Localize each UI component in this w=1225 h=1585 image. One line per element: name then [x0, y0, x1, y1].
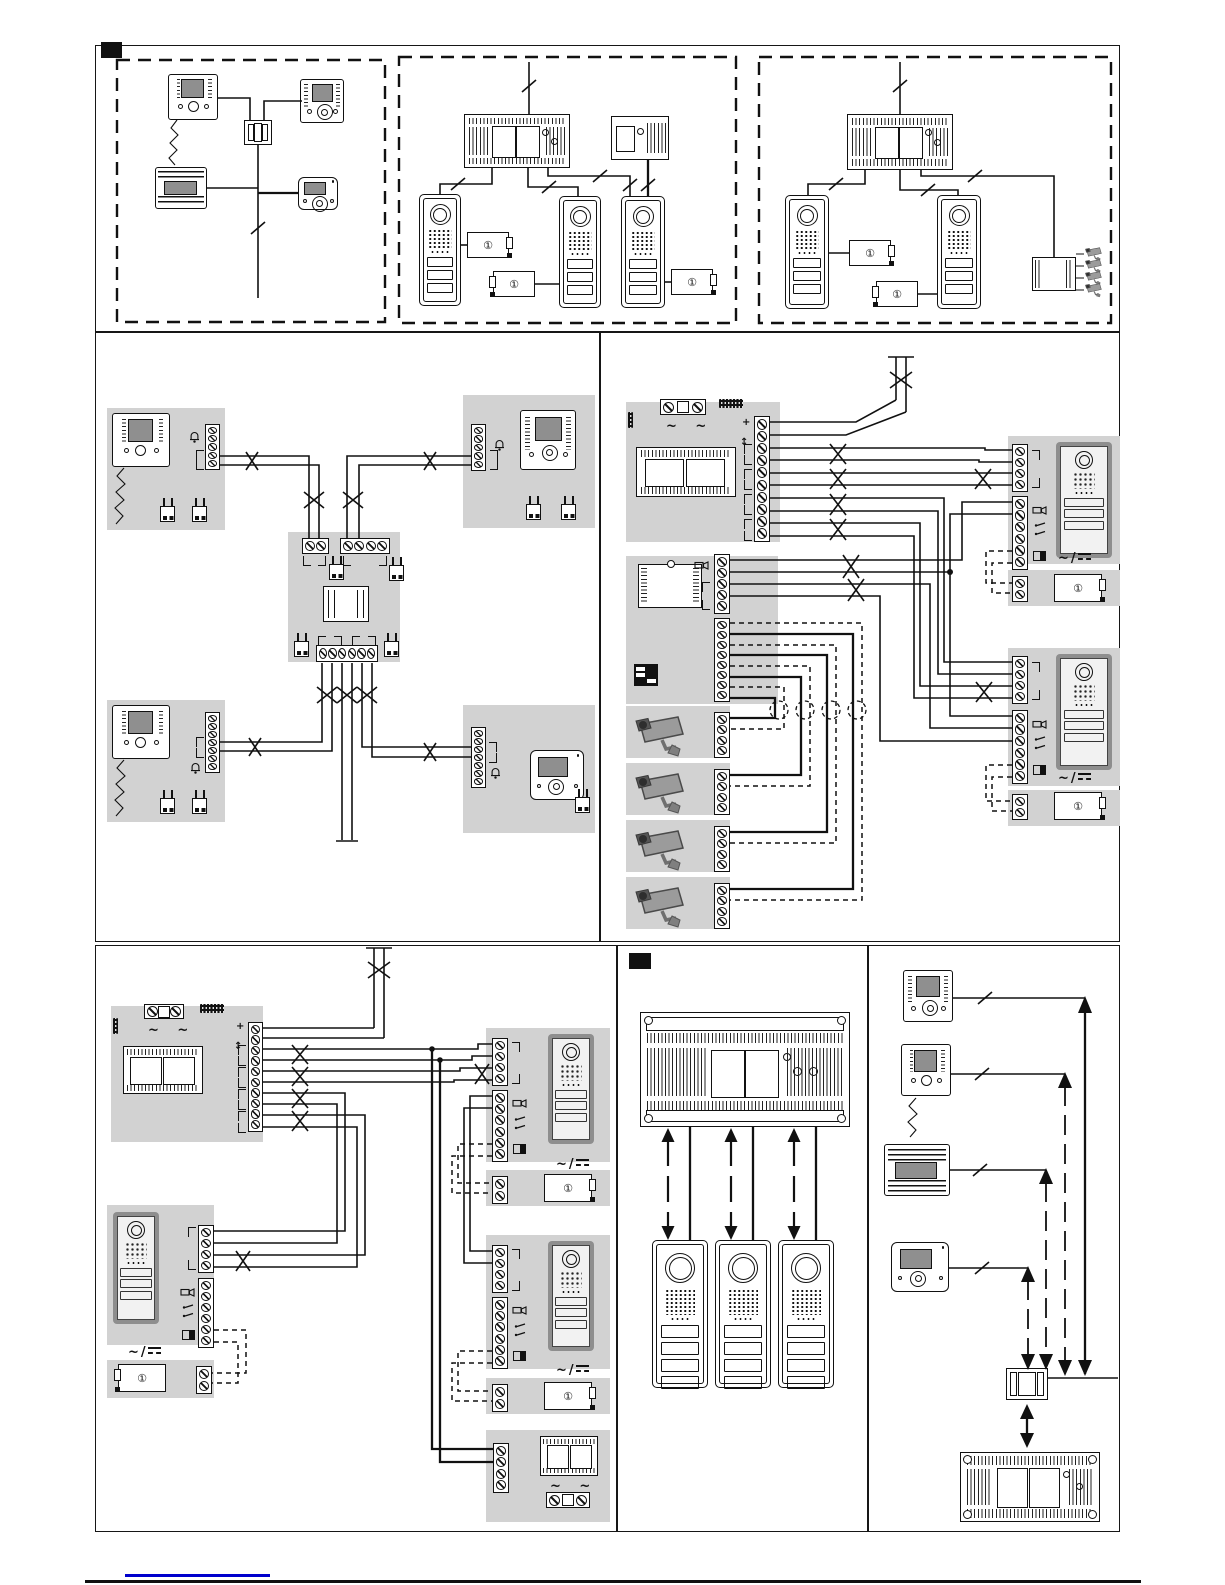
lock-release: ① [467, 232, 509, 258]
entrance-panel-photo [1056, 442, 1112, 558]
jumper [389, 557, 404, 581]
video-handsfree-monitor [903, 970, 953, 1022]
terminal-block [492, 1245, 508, 1293]
terminal-block [1012, 710, 1028, 784]
video-handset-monitor [168, 74, 218, 120]
terminal-block [714, 769, 730, 815]
ac-dc-icon: ~/ [128, 1346, 161, 1359]
audio-intercom-unit [155, 167, 207, 209]
camera-icon [512, 1301, 528, 1320]
door-contact-icon [182, 1330, 195, 1340]
entrance-panel [715, 1240, 771, 1388]
page-bottom-rule [85, 1580, 1141, 1583]
terminal-block [714, 618, 730, 702]
entrance-panel-photo [548, 1241, 594, 1351]
terminal-block [1012, 496, 1028, 570]
mains-fuse-block [660, 399, 706, 415]
manual-page: ① ① ① ① ① [0, 0, 1225, 1585]
entrance-panel [621, 196, 665, 308]
ac-dc-icon: ~/ [1058, 772, 1091, 785]
jumper [384, 633, 399, 657]
switch-contact-icon [1034, 736, 1047, 757]
terminal-block [492, 1297, 508, 1369]
switch-contact-icon [1034, 522, 1047, 543]
frame-bottom-right [868, 945, 1120, 1532]
entrance-panel-photo [548, 1034, 594, 1144]
ac-marks: ~ ~ [148, 1024, 195, 1037]
terminal-block [492, 1176, 508, 1204]
mains-fuse-block [546, 1492, 590, 1508]
door-contact-icon [1033, 551, 1046, 561]
terminal-block [493, 1443, 509, 1493]
power-supply-unit [123, 1046, 203, 1094]
auxiliary-power-supply [611, 116, 669, 160]
connector-strip [200, 1004, 224, 1013]
ac-dc-icon: ~/ [1058, 552, 1091, 565]
camera-icon [694, 556, 710, 575]
entrance-panel [937, 195, 981, 309]
camera-icon [180, 1283, 196, 1302]
entrance-panel [559, 196, 601, 308]
bell-icon [189, 429, 200, 448]
power-supply-unit [636, 447, 736, 497]
terminal-block [714, 554, 730, 614]
section-label-bottom [629, 953, 651, 969]
junction-box [1006, 1368, 1048, 1400]
terminal-block [492, 1038, 508, 1086]
lock-release: ① [544, 1174, 592, 1202]
lock-release: ① [493, 271, 535, 297]
side-connector [113, 1018, 118, 1034]
terminal-block [492, 1384, 508, 1412]
entrance-panel [419, 194, 461, 306]
lock-release: ① [1054, 574, 1102, 602]
camera-icon [1032, 501, 1048, 520]
terminal-block [471, 727, 486, 788]
lock-release-symbol: ① [483, 239, 493, 252]
jumper [575, 789, 590, 813]
camera-interface [1032, 257, 1076, 291]
video-handsfree-monitor [520, 410, 576, 470]
jumper [160, 498, 175, 522]
jumper [329, 556, 344, 580]
lock-release: ① [849, 240, 891, 266]
entrance-panel-photo [113, 1212, 159, 1324]
camera-icon [1032, 715, 1048, 734]
lock-release: ① [1054, 792, 1102, 820]
terminal-block [198, 1278, 214, 1348]
connector-strip [719, 399, 743, 408]
terminal-block [471, 424, 486, 471]
terminal-block [302, 538, 329, 554]
terminal-block [198, 1225, 214, 1273]
audio-intercom-unit [884, 1144, 950, 1196]
switch-contact-icon [182, 1304, 195, 1325]
door-contact-icon [1033, 765, 1046, 775]
entrance-panel [785, 195, 829, 309]
distribution-box [244, 120, 272, 145]
video-handset-monitor [901, 1044, 951, 1096]
terminal-block [205, 712, 220, 773]
jumper [526, 496, 541, 520]
door-contact-icon [513, 1144, 526, 1154]
plus-label: + [742, 418, 750, 428]
jumper [561, 496, 576, 520]
terminal-block [714, 826, 730, 872]
terminal-block [754, 416, 770, 542]
bell-icon [190, 760, 201, 779]
terminal-block [196, 1366, 212, 1394]
terminal-block [714, 712, 730, 758]
video-handsfree-monitor [300, 79, 344, 123]
terminal-block [1012, 576, 1028, 602]
door-contact-icon [513, 1351, 526, 1361]
plus-label: + [236, 1022, 244, 1032]
entrance-panel-photo [1056, 654, 1112, 770]
entrance-panel [652, 1240, 708, 1388]
switch-contact-icon [514, 1323, 527, 1344]
camera-interface-module [638, 564, 702, 608]
ac-dc-icon: ~/ [556, 1364, 589, 1377]
jumper [160, 790, 175, 814]
lock-release: ① [544, 1382, 592, 1410]
jumper [192, 790, 207, 814]
footer-link-rule[interactable] [125, 1574, 270, 1577]
compact-video-monitor [891, 1242, 949, 1292]
video-handset-monitor [112, 705, 170, 759]
floor-distributor-unit [323, 586, 369, 622]
jumper [192, 498, 207, 522]
side-connector [628, 412, 633, 428]
lock-release: ① [118, 1364, 166, 1392]
terminal-block [1012, 444, 1028, 492]
terminal-block [492, 1090, 508, 1162]
terminal-block [205, 424, 220, 470]
ac-marks: ~ ~ [666, 420, 713, 433]
bell-icon [490, 765, 501, 784]
main-power-supply [847, 114, 953, 170]
main-power-supply [464, 114, 570, 168]
camera-icon [512, 1094, 528, 1113]
terminal-block [340, 538, 390, 554]
section-label-top [101, 42, 122, 58]
video-handset-monitor [112, 413, 170, 467]
terminal-block [316, 645, 378, 662]
lock-release: ① [876, 281, 918, 307]
bell-transformer [540, 1436, 598, 1476]
terminal-block [714, 883, 730, 929]
lock-release: ① [671, 269, 713, 295]
entrance-panel [778, 1240, 834, 1388]
terminal-block [248, 1022, 263, 1132]
jumper [294, 633, 309, 657]
terminal-block [1012, 794, 1028, 820]
switcher-power-unit [640, 1012, 850, 1127]
switch-contact-icon [514, 1116, 527, 1137]
compact-video-monitor [298, 177, 338, 210]
mains-fuse-block [144, 1004, 184, 1019]
dip-switch [634, 664, 658, 686]
terminal-block [1012, 656, 1028, 704]
power-supply-unit [960, 1452, 1100, 1522]
